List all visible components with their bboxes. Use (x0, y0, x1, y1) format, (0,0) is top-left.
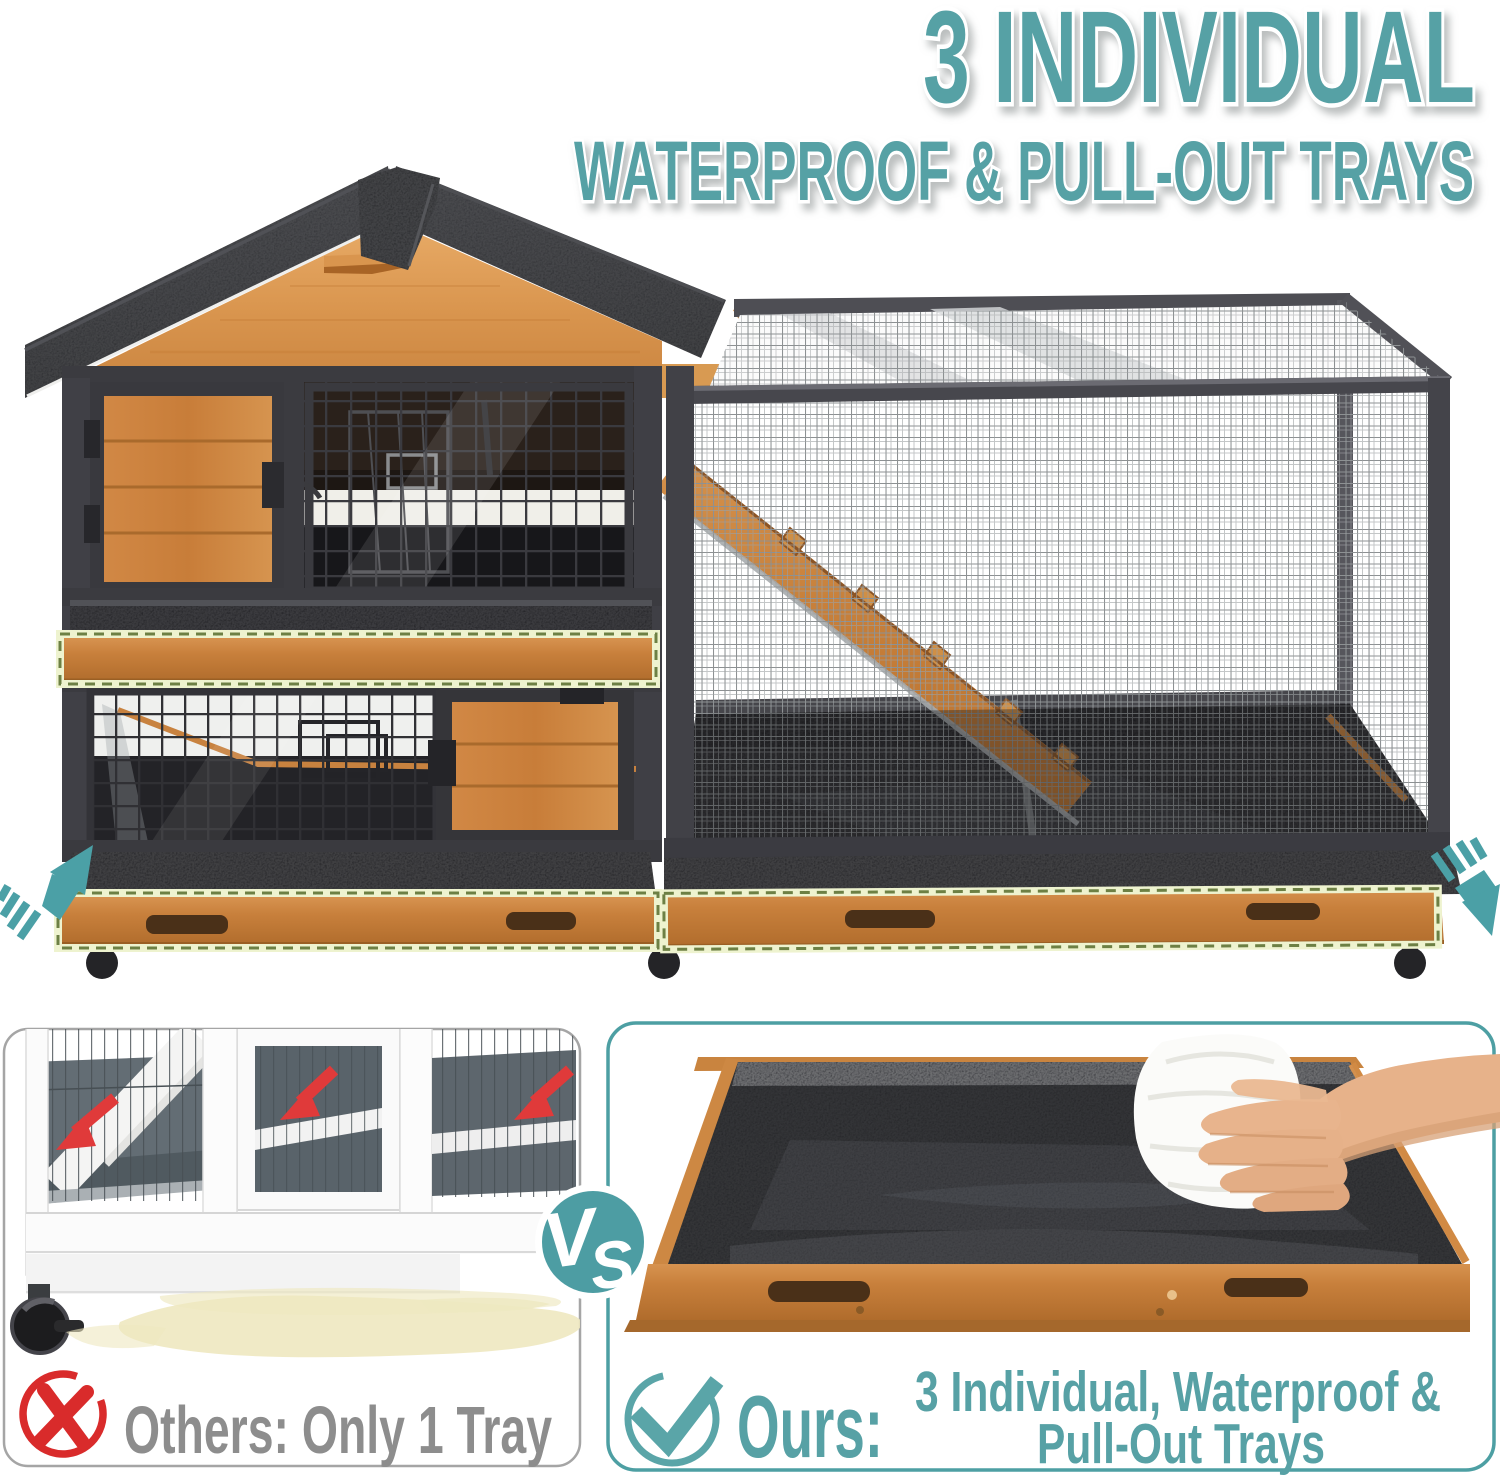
svg-text:Ours:: Ours: (737, 1377, 883, 1476)
svg-text:3 INDIVIDUAL: 3 INDIVIDUAL (923, 0, 1475, 130)
svg-text:Others: Only 1 Tray: Others: Only 1 Tray (124, 1393, 552, 1468)
svg-text:Pull-Out Trays: Pull-Out Trays (1037, 1412, 1325, 1476)
svg-text:WATERPROOF & PULL-OUT TRAYS: WATERPROOF & PULL-OUT TRAYS (574, 124, 1474, 218)
